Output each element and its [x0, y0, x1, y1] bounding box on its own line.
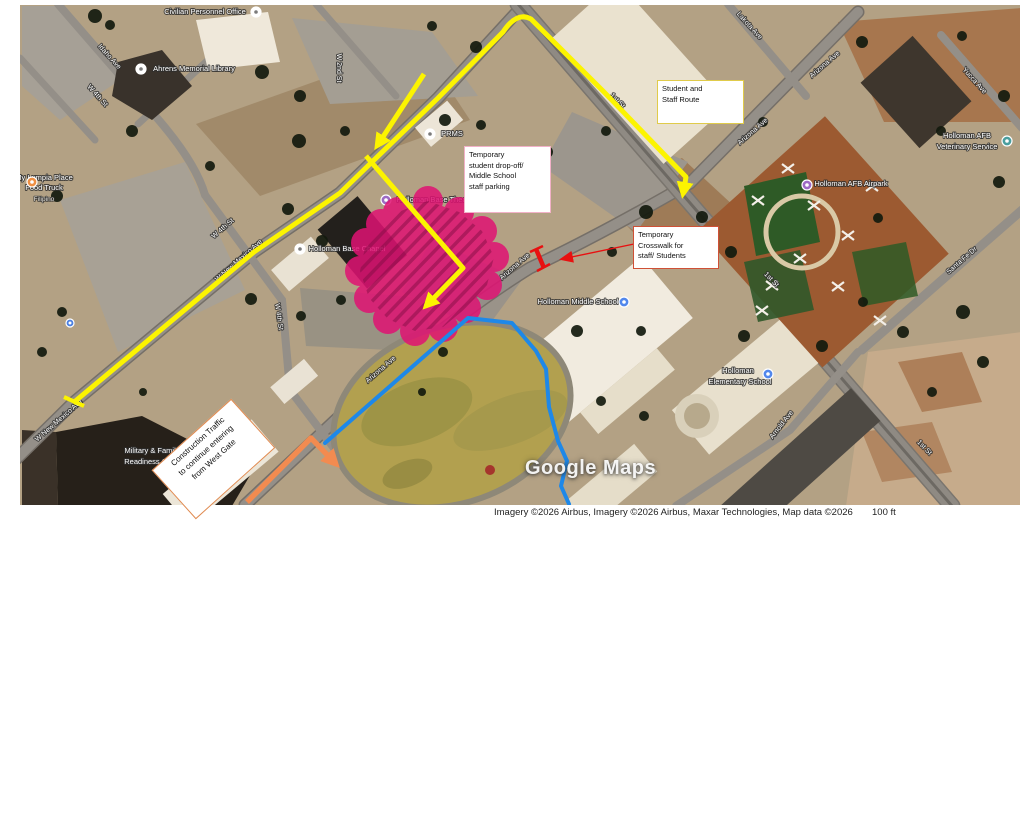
parking-icon	[66, 319, 74, 327]
poi-label: PRMS	[441, 129, 463, 138]
callout-student-staff-route: Student and Staff Route	[657, 80, 744, 124]
poi-label: Ahrens Memorial Library	[153, 64, 235, 73]
museum-icon	[802, 180, 812, 190]
street-label: W 2nd St	[335, 54, 342, 83]
poi-label: Civilian Personnel Office	[164, 7, 246, 16]
map-attribution: Imagery ©2026 Airbus, Imagery ©2026 Airb…	[494, 507, 853, 518]
poi-label: Holloman	[722, 366, 754, 375]
school-icon	[619, 297, 629, 307]
legend: Temporary Drop-off/ Staff Parking Parent…	[0, 538, 1024, 834]
google-maps-watermark: Google Maps	[525, 457, 656, 480]
map-scale-label: 100 ft	[872, 507, 896, 518]
satellite-map[interactable]: Idaho AveW 4th StW 2nd StW New Mexico Av…	[20, 5, 1020, 505]
library-icon	[136, 64, 146, 74]
vet-icon	[1002, 136, 1012, 146]
church-icon	[295, 244, 305, 254]
poi-label: Holloman AFB	[943, 131, 991, 140]
poi-label: Holloman Middle School	[538, 297, 619, 306]
school-icon	[425, 129, 435, 139]
callout-temporary-crosswalk: Temporary Crosswalk for staff/ Students	[633, 226, 719, 269]
office-icon	[251, 7, 261, 17]
poi-sublabel: Filipino	[34, 196, 55, 203]
restaurant-icon	[27, 177, 37, 187]
satellite-imagery: Idaho AveW 4th StW 2nd StW New Mexico Av…	[20, 5, 1020, 505]
page: Idaho AveW 4th StW 2nd StW New Mexico Av…	[0, 0, 1024, 834]
poi-label: Veterinary Service	[937, 142, 998, 151]
school-icon	[763, 369, 773, 379]
poi-label: Holloman AFB Airpark	[814, 179, 888, 188]
poi-label: Elementary School	[709, 377, 772, 386]
callout-temporary-dropoff: Temporary student drop-off/ Middle Schoo…	[464, 146, 551, 213]
